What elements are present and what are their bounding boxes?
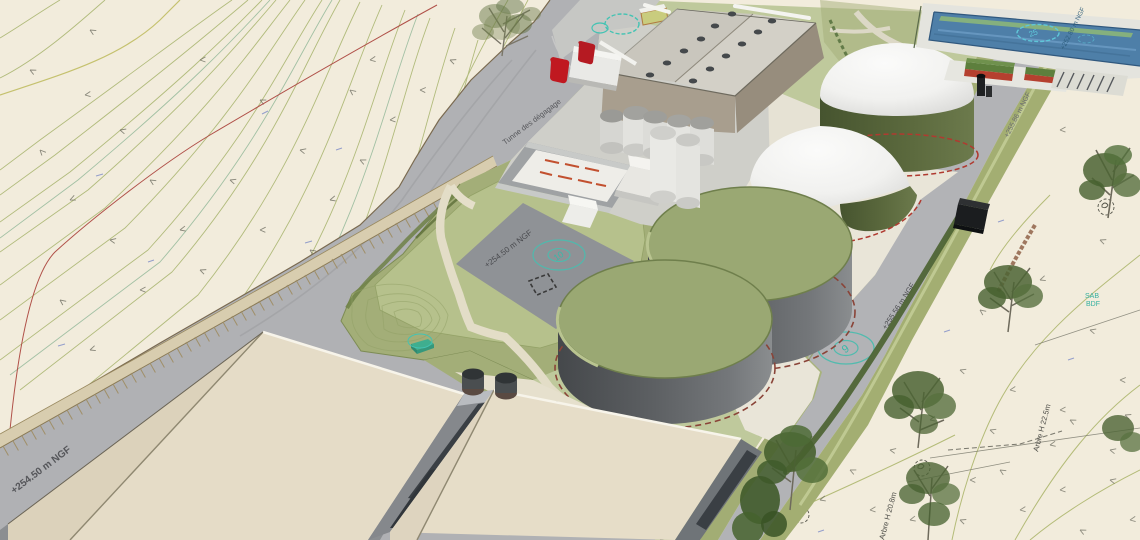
svg-text:SAB: SAB [1085,293,1099,300]
svg-text:BDF: BDF [1086,301,1100,308]
